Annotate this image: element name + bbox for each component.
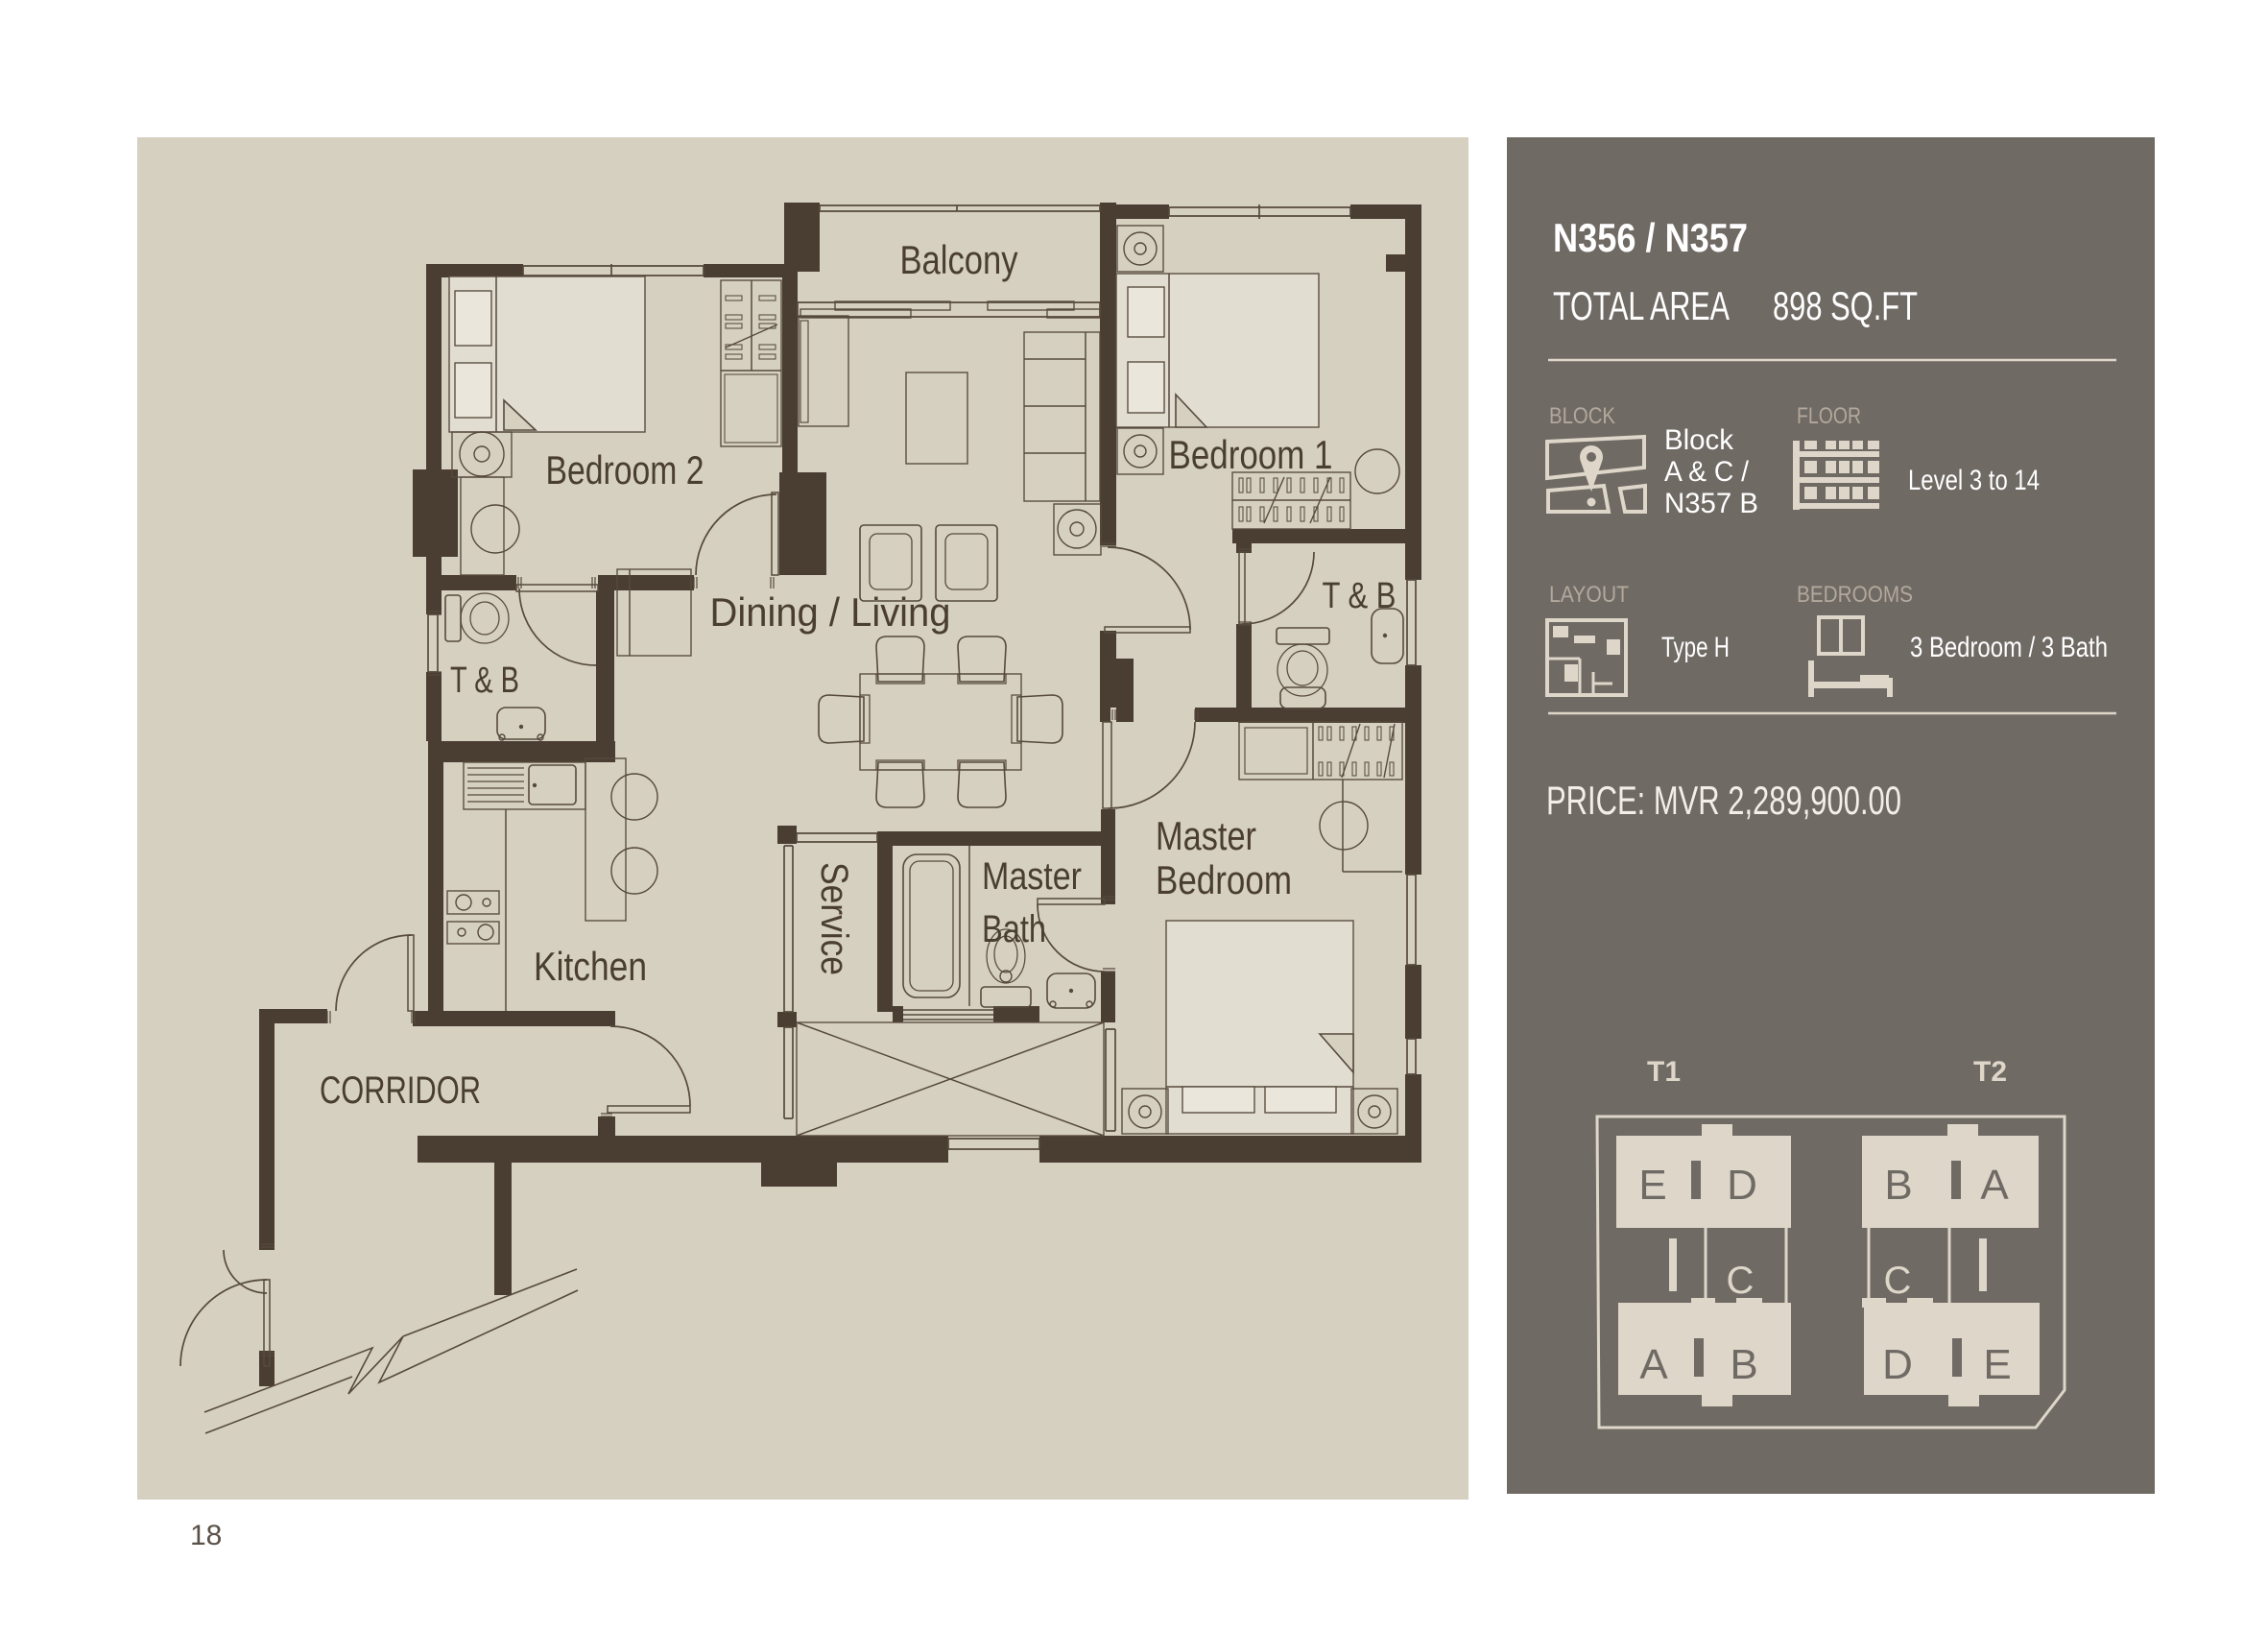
- svg-text:Block: Block: [1664, 424, 1734, 456]
- svg-text:FLOOR: FLOOR: [1797, 403, 1861, 429]
- svg-text:Level 3 to 14: Level 3 to 14: [1908, 465, 2040, 496]
- svg-text:Bedroom 1: Bedroom 1: [1169, 432, 1333, 477]
- svg-text:N357 B: N357 B: [1664, 488, 1758, 519]
- svg-text:D: D: [1882, 1341, 1913, 1388]
- svg-text:E: E: [1638, 1162, 1666, 1209]
- svg-text:BLOCK: BLOCK: [1549, 403, 1615, 429]
- svg-text:B: B: [1730, 1341, 1757, 1388]
- svg-text:Kitchen: Kitchen: [534, 944, 647, 989]
- svg-text:Type H: Type H: [1661, 632, 1730, 663]
- svg-text:C: C: [1884, 1260, 1912, 1302]
- svg-text:Bedroom: Bedroom: [1156, 857, 1292, 902]
- svg-text:A: A: [1980, 1162, 2009, 1209]
- svg-text:Dining / Living: Dining / Living: [710, 589, 951, 635]
- svg-text:C: C: [1727, 1260, 1755, 1302]
- svg-text:T2: T2: [1973, 1056, 2007, 1088]
- svg-text:T & B: T & B: [1323, 576, 1397, 616]
- svg-text:898 SQ.FT: 898 SQ.FT: [1773, 283, 1918, 328]
- svg-text:TOTAL AREA: TOTAL AREA: [1553, 283, 1730, 328]
- svg-text:Balcony: Balcony: [900, 237, 1018, 282]
- svg-text:A: A: [1639, 1341, 1668, 1388]
- svg-text:Service: Service: [813, 862, 855, 975]
- svg-text:E: E: [1983, 1341, 2011, 1388]
- svg-text:18: 18: [190, 1520, 222, 1551]
- svg-text:CORRIDOR: CORRIDOR: [320, 1069, 481, 1112]
- svg-text:3 Bedroom / 3 Bath: 3 Bedroom / 3 Bath: [1910, 632, 2108, 663]
- svg-text:BEDROOMS: BEDROOMS: [1797, 582, 1913, 608]
- svg-text:Bath: Bath: [982, 908, 1046, 950]
- svg-text:A & C /: A & C /: [1664, 456, 1750, 488]
- svg-text:LAYOUT: LAYOUT: [1549, 582, 1629, 608]
- svg-text:Bedroom 2: Bedroom 2: [546, 447, 704, 492]
- svg-text:Master: Master: [982, 855, 1082, 898]
- svg-text:B: B: [1884, 1162, 1912, 1209]
- svg-text:PRICE: MVR 2,289,900.00: PRICE: MVR 2,289,900.00: [1546, 778, 1901, 823]
- svg-text:T & B: T & B: [450, 660, 519, 701]
- svg-text:T1: T1: [1647, 1056, 1681, 1088]
- svg-text:Master: Master: [1156, 813, 1256, 858]
- svg-text:D: D: [1727, 1162, 1757, 1209]
- svg-text:N356 / N357: N356 / N357: [1553, 215, 1748, 260]
